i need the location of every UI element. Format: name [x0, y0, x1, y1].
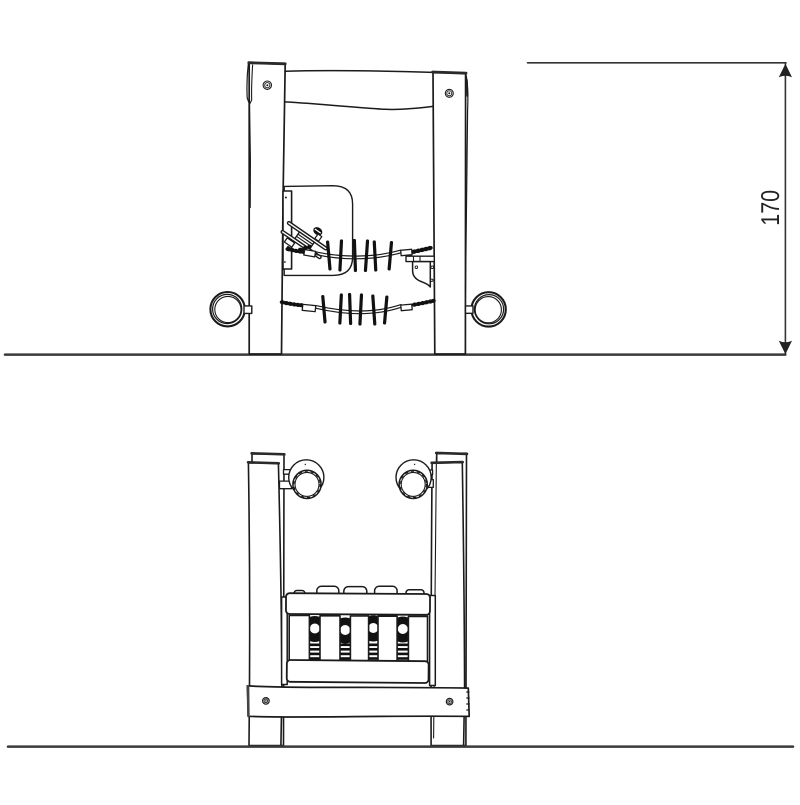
svg-text:170: 170	[756, 190, 785, 226]
